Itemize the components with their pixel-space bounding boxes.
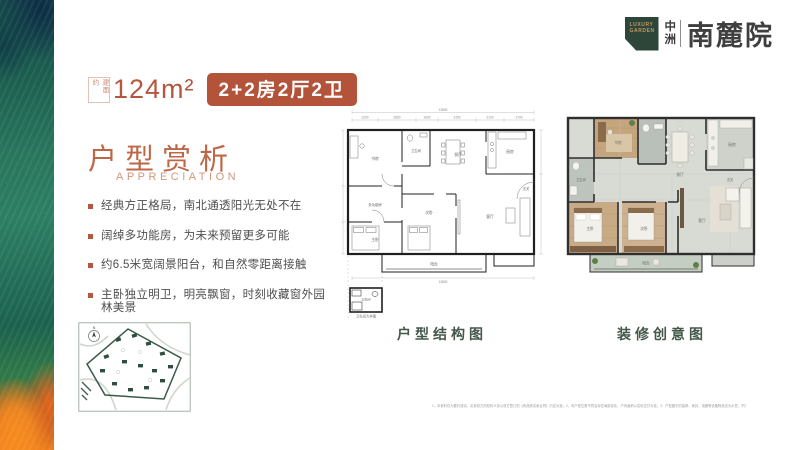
- sitemap-thumbnail: N: [78, 322, 191, 417]
- dim-seg: 2200: [361, 116, 368, 120]
- company-char-1: 中: [665, 21, 677, 34]
- feature-text: 约6.5米宽阔景阳台，和自然零距离接触: [101, 259, 307, 271]
- room-label-study: 书房: [614, 140, 622, 145]
- structure-floorplan: 13800 2200 3650 1600 3150 2100 1700 1380…: [338, 106, 546, 327]
- dim-total-top: 13800: [439, 108, 448, 112]
- company-char-2: 洲: [665, 34, 677, 47]
- luxury-garden-seal-icon: LUXURY GARDEN: [625, 17, 659, 51]
- room-label-multi: 多功能房: [368, 202, 382, 207]
- decor-floorplan: 书房 餐厅 厨房 卫生间 主卧 次卧 客厅 阳台 玄关: [560, 104, 764, 321]
- room-label-dining: 餐厅: [454, 152, 462, 157]
- room-label-bed2: 次卧: [640, 226, 648, 231]
- room-label-foyer: 玄关: [727, 177, 734, 182]
- room-label-balcony: 阳台: [642, 261, 650, 266]
- dim-total-bottom: 13800: [439, 280, 448, 284]
- logo-divider: [680, 20, 681, 47]
- room-label-kitchen: 厨房: [728, 142, 736, 147]
- feature-list: 经典方正格局，南北通透阳光无处不在 阔绰多功能房，为未来预留更多可能 约6.5米…: [88, 200, 328, 331]
- area-prefix-label: 建面约: [88, 77, 110, 103]
- garden-text: GARDEN: [630, 28, 655, 35]
- room-label-bath: 卫生间: [576, 177, 586, 182]
- feature-item: 阔绰多功能房，为未来预留更多可能: [88, 230, 328, 243]
- room-label-master: 主卧: [371, 237, 379, 242]
- brochure-page: LUXURY GARDEN 中 洲 南麓院 建面约 124m² 2+2房2厅2卫…: [0, 0, 800, 450]
- room-label-foyer: 玄关: [523, 186, 530, 191]
- room-label-kitchen: 厨房: [506, 149, 514, 154]
- dim-seg: 1700: [515, 116, 522, 120]
- project-name: 南麓院: [687, 14, 774, 53]
- room-label-study: 书房: [371, 156, 379, 161]
- room-label-bed2: 次卧: [425, 210, 433, 215]
- brand-logo: LUXURY GARDEN 中 洲 南麓院: [625, 14, 775, 53]
- feature-text: 主卧独立明卫，明亮飘窗，时刻收藏窗外园林美景: [101, 289, 325, 314]
- feature-item: 主卧独立明卫，明亮飘窗，时刻收藏窗外园林美景: [88, 289, 328, 315]
- decorative-art-strip: [0, 0, 54, 450]
- area-value: 124m²: [113, 74, 195, 105]
- area-headline: 建面约 124m² 2+2房2厅2卫: [88, 73, 357, 106]
- company-name: 中 洲: [665, 21, 677, 46]
- feature-text: 经典方正格局，南北通透阳光无处不在: [101, 200, 302, 212]
- feature-item: 经典方正格局，南北通透阳光无处不在: [88, 200, 328, 213]
- decor-plan-label: 装修创意图: [560, 324, 764, 344]
- dim-seg: 2100: [486, 116, 493, 120]
- room-label-bath: 卫生间: [411, 148, 421, 153]
- dim-seg: 3150: [453, 116, 460, 120]
- luxury-garden-label: LUXURY GARDEN: [630, 22, 655, 35]
- disclaimer-text: 1、本资料仅为要约邀请，买卖双方的权利义务以双方签订的《商品房买卖合同》约定为准…: [432, 403, 746, 408]
- bullet-square-icon: [88, 293, 93, 298]
- bullet-square-icon: [88, 234, 93, 239]
- detail-caption: 卫生间大样图: [356, 314, 377, 319]
- layout-spec-badge: 2+2房2厅2卫: [207, 73, 357, 106]
- dim-seg: 3650: [393, 116, 400, 120]
- feature-text: 阔绰多功能房，为未来预留更多可能: [101, 230, 290, 242]
- bullet-square-icon: [88, 204, 93, 209]
- room-label-balcony: 阳台: [430, 262, 438, 267]
- structure-plan-label: 户型结构图: [338, 324, 546, 344]
- bullet-square-icon: [88, 263, 93, 268]
- feature-item: 约6.5米宽阔景阳台，和自然零距离接触: [88, 259, 328, 272]
- room-label-dining: 餐厅: [676, 172, 684, 177]
- room-label-bath-detail: 卫生间: [361, 297, 370, 302]
- room-label-living: 客厅: [698, 218, 706, 223]
- room-label-living: 客厅: [486, 214, 494, 219]
- north-label: N: [93, 326, 96, 330]
- room-label-master: 主卧: [586, 226, 594, 231]
- section-subtitle: APPRECIATION: [116, 171, 239, 183]
- dim-seg: 1600: [423, 116, 430, 120]
